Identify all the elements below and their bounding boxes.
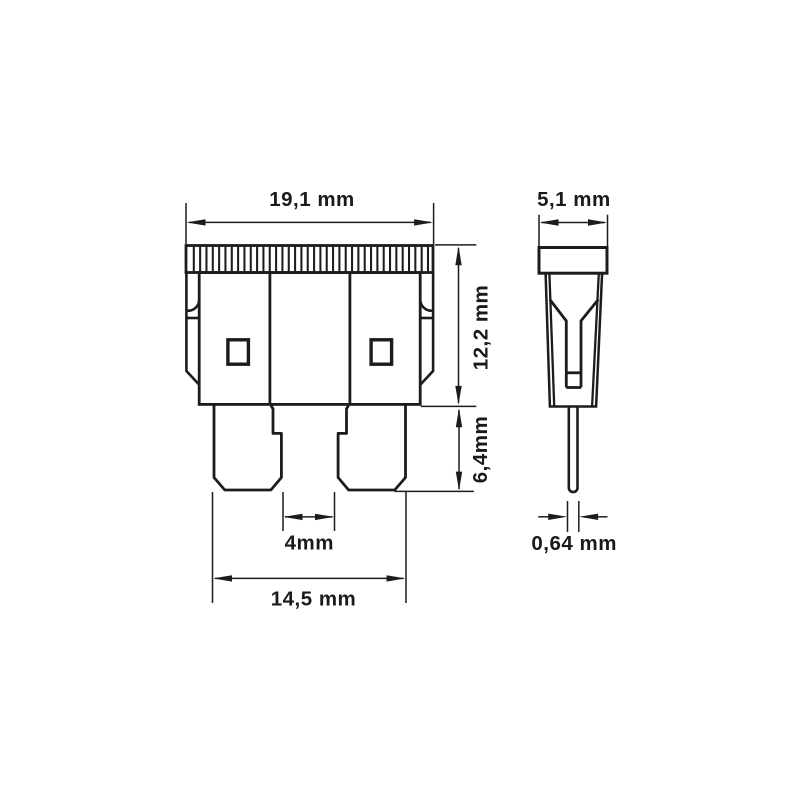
- svg-text:19,1 mm: 19,1 mm: [269, 188, 355, 211]
- svg-text:0,64 mm: 0,64 mm: [531, 532, 617, 555]
- svg-text:12,2 mm: 12,2 mm: [470, 285, 493, 371]
- svg-text:5,1 mm: 5,1 mm: [537, 188, 611, 211]
- svg-text:4mm: 4mm: [285, 532, 334, 555]
- svg-text:14,5 mm: 14,5 mm: [271, 588, 357, 611]
- svg-text:6,4mm: 6,4mm: [469, 416, 492, 483]
